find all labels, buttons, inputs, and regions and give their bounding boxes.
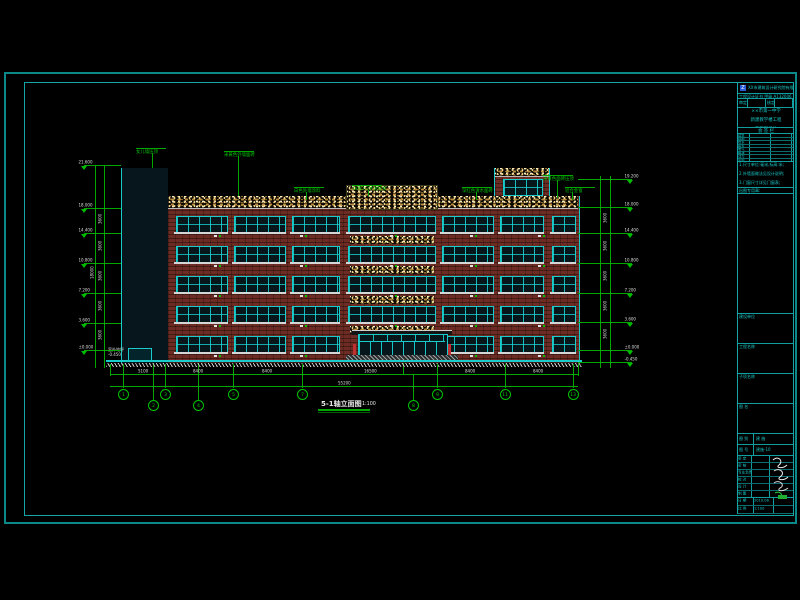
signature-role-cell: 制 图 [738,491,752,497]
annotation-leader [152,153,153,168]
level-value: -0.450 [625,358,638,361]
window-tag-mark [305,295,307,297]
signature-name-cell [752,477,770,483]
window-tag [538,325,541,327]
floor-dim-value: 3600 [98,305,102,311]
level-symbol-icon [627,264,633,268]
titleblock-approval-row: 审定核定 [738,99,793,108]
annotation-bar [462,187,492,188]
window-tag-mark [395,235,397,237]
window-sill [346,322,436,324]
window-tag-mark [395,295,397,297]
window-tag [390,265,393,267]
approval-cell [775,99,793,108]
window [348,246,436,263]
window-tag-mark [305,265,307,267]
overall-height-value: 18000 [90,273,94,279]
annotation-text: 铝合金窗 [565,189,598,192]
window-sill [290,352,340,354]
window-sill [346,292,436,294]
titleblock-footer: 日 期2010.06比 例1:100 [738,498,793,514]
window-tag-mark [475,265,477,267]
window-sill [550,292,576,294]
footer-value: 1:100 [754,507,763,511]
floor-dim-value: 3600 [603,275,607,281]
window-tag [470,265,473,267]
window-sill [346,232,436,234]
dim-chain-line [600,176,601,368]
floor-dim-value: 3600 [603,305,607,311]
window-tag-mark [395,265,397,267]
signature-role: 专业负责 [738,471,744,475]
sign-grid-cell: 暖通 [738,152,750,155]
footer-label-cell: 日 期 [738,498,754,505]
window [176,216,228,233]
grid-leader [165,374,166,388]
grid-bubble: 1 [118,389,129,400]
dim-segment-value: 16500 [364,370,376,373]
overall-dim-value: 55200 [338,382,350,385]
grid-bubble-number: 9 [436,392,439,397]
sign-grid-label: 总图 [738,159,742,162]
level-line [84,263,121,264]
window-sill [346,262,436,264]
window-sill [174,232,228,234]
sign-grid-cell [771,155,792,158]
annotation-leader [368,190,369,196]
window-tag [538,295,541,297]
titleblock-pair-rows: 图 别建 施图 号建施-10 [738,434,793,456]
footer-extra-cell [774,498,792,505]
level-value: 7.200 [625,289,638,292]
window-tag-mark [219,265,221,267]
window [442,216,494,233]
window-sill [440,232,494,234]
sign-grid-cell [750,152,771,155]
grid-leader [413,374,414,400]
dim-segment-value: 8400 [193,370,205,373]
grid-leader [437,374,438,388]
window-tag-mark [305,235,307,237]
labelled-box: 图 名 [738,404,793,434]
window-tag-mark [543,235,545,237]
window-tag [390,325,393,327]
window-sill [550,352,576,354]
window-tag-mark [395,325,397,327]
sign-grid-cell [750,145,771,148]
signature-name-cell [752,456,770,462]
approval-cell: 审定 [738,99,748,108]
level-value: ±0.000 [79,346,92,349]
cad-viewport: 室外地坪-0.45021.60018.00014.40010.8007.2003… [0,0,800,600]
window [500,306,544,323]
window-sill [232,352,286,354]
window-tag-mark [475,295,477,297]
window-sill [290,292,340,294]
level-line [84,233,121,234]
annotation-leader [476,192,477,200]
window-sill [550,232,576,234]
level-value: 10.800 [79,259,92,262]
labelled-box-title: 建设单位 [739,315,766,319]
window-tag [470,355,473,357]
sign-grid-cell [771,159,792,162]
level-line [84,350,121,351]
approval-cell: 核定 [766,99,776,108]
annotation-leader [238,156,239,196]
level-line [578,362,632,363]
window-sill [290,322,340,324]
grid-bubble: 7 [297,389,308,400]
sign-grid-cell [750,148,771,151]
level-value: 18.000 [625,203,638,206]
window [552,276,576,293]
signature-name-cell [752,484,770,490]
window [234,246,286,263]
level-symbol-icon [81,294,87,298]
pair-row: 图 别建 施 [738,434,793,445]
project-name-line: ××市第一中学 [739,108,794,113]
window [552,216,576,233]
level-value: 14.400 [79,229,92,232]
sign-grid-label: 暖通 [738,152,742,155]
window-tag [300,265,303,267]
grid-bubble-number: 8 [412,403,415,408]
approval-cell-label: 核定 [767,101,771,105]
floor-dim-value: 3600 [603,333,607,339]
labelled-box: 子项名称 [738,374,793,404]
drawing-scale: 1:100 [362,401,376,406]
window [234,216,286,233]
grid-leader [123,374,124,388]
window [500,216,544,233]
sign-grid-cell [750,134,771,137]
titleblock-sign-grid: 建筑结构给水排水电气暖通动力总图 [738,134,793,162]
labelled-box-title: 子项名称 [739,375,766,379]
level-value: 3.600 [625,318,638,321]
window-sill [290,262,340,264]
window-tag-mark [305,325,307,327]
window [348,216,436,233]
window [292,336,340,353]
window [234,276,286,293]
sign-grid-cell [750,138,771,141]
note-line: 3.门窗尺寸详见门窗表; [739,181,766,185]
footer-row: 日 期2010.06 [738,498,793,506]
window-tag [470,325,473,327]
window-sill [498,322,544,324]
spandrel-band [350,236,434,244]
window [500,276,544,293]
window [292,306,340,323]
footer-label: 日 期 [738,499,745,503]
titleblock-logo-row: Z ХХ市建筑设计研究院有限公司 [738,83,793,94]
sign-grid-cell: 结构 [738,138,750,141]
level-line [84,165,121,166]
footer-row: 比 例1:100 [738,506,793,514]
window-tag-mark [305,355,307,357]
window-tag-mark [219,355,221,357]
level-symbol-icon [81,351,87,355]
grid-leader [573,374,574,388]
note-line: 2.外墙面做法见设计说明; [739,172,766,176]
penthouse-parapet [495,168,549,177]
window-tag-mark [219,325,221,327]
level-line [84,293,121,294]
window [500,246,544,263]
footer-value: 2010.06 [754,499,763,503]
sign-grid-label: 建筑 [738,134,742,137]
grid-bubble: 2 [148,400,159,411]
level-value: 7.200 [79,289,92,292]
project-name-line: 新建教学楼工程 [739,117,794,122]
spandrel-band [350,266,434,274]
signature-role-cell: 审 核 [738,463,752,469]
grid-bubble-number: 4 [197,403,200,408]
window-sill [550,262,576,264]
window-tag [390,235,393,237]
window-tag-mark [219,235,221,237]
level-symbol-icon [627,323,633,327]
annotation-text: 米黄色面砖压顶 [543,177,576,180]
labelled-box-title: 图 名 [739,405,766,409]
annotation-text: 深红色清水面砖 [462,189,495,192]
signature-name-cell [752,463,770,469]
grid-bubble: 8 [408,400,419,411]
dim-segment-value: 8400 [533,370,545,373]
title-block: Z ХХ市建筑设计研究院有限公司 工程设计证书 甲级 A132006 建设部颁发… [737,83,793,514]
stair-tower [121,168,168,363]
ground-hatch [106,363,582,367]
window-tag-mark [543,355,545,357]
extension-line [110,364,111,376]
window [176,306,228,323]
dim-line [110,374,578,375]
window [442,246,494,263]
window-sill [232,262,286,264]
window-sill [174,322,228,324]
level-line [578,350,632,351]
stamp-label: 出图专用章: [739,189,766,193]
window [176,336,228,353]
level-value: ±0.000 [625,346,638,349]
level-symbol-icon [627,208,633,212]
floor-dim-value: 3600 [98,218,102,224]
level-symbol-icon [81,234,87,238]
window-sill [440,292,494,294]
annotation-bar [543,175,573,176]
floor-dim-value: 3600 [603,217,607,223]
pair-value: 建 施 [756,437,774,441]
window-tag [214,265,217,267]
grid-bubble-number: 1 [122,392,125,397]
grid-bubble: 9 [432,389,443,400]
annotation-leader [557,180,558,198]
footer-value-cell: 2010.06 [754,498,774,505]
level-line [578,233,632,234]
level-symbol-icon [627,351,633,355]
level-symbol-icon [81,209,87,213]
dim-segment-value: 5100 [138,370,150,373]
signature-role: 校 对 [738,478,744,482]
dim-segment-value: 8400 [262,370,274,373]
level-line [578,293,632,294]
window-sill [550,322,576,324]
window [552,246,576,263]
grid-bubble-number: 2 [152,403,155,408]
window [552,306,576,323]
level-symbol-icon [81,324,87,328]
level-symbol-icon [627,180,633,184]
level-line [84,323,121,324]
level-symbol-icon [627,294,633,298]
grid-bubble-number: 7 [301,392,304,397]
sign-grid-cell [750,155,771,158]
sign-grid-label: 结构 [738,138,742,141]
elevation-drawing: 室外地坪-0.45021.60018.00014.40010.8007.2003… [0,0,800,600]
annotation-bar [294,187,324,188]
sign-grid-cell [771,145,792,148]
sign-grid-cell: 给水 [738,141,750,144]
spandrel-band [350,296,434,304]
sign-grid-label: 排水 [738,145,742,148]
floor-dim-value: 3600 [603,245,607,251]
titleblock-stamp-area [738,194,793,314]
signature-role: 设 计 [738,485,744,489]
window-tag-mark [543,325,545,327]
footer-extra-cell [774,506,792,513]
grid-bubble: 13 [568,389,579,400]
sign-grid-label: 动力 [738,155,742,158]
window-tag-mark [543,295,545,297]
window-tag [470,235,473,237]
footer-label-cell: 比 例 [738,506,754,513]
approval-cell [748,99,766,108]
penthouse [494,168,550,196]
pair-label: 图 号 [739,448,746,452]
company-name: ХХ市建筑设计研究院有限公司 [748,86,793,90]
grid-leader [198,374,199,400]
dim-chain-line [610,176,611,368]
window-tag [300,325,303,327]
window-sill [440,322,494,324]
window-sill [174,352,228,354]
annotation-bar [565,187,595,188]
footer-label: 比 例 [738,507,745,511]
pair-value-cell: 建 施 [754,434,792,444]
window-sill [498,232,544,234]
titleblock-notes: 1.尺寸单位:毫米,标高:米;2.外墙面做法见设计说明;3.门窗尺寸详见门窗表;… [738,162,793,188]
window-tag [538,355,541,357]
grid-leader [505,374,506,388]
sign-grid-cell [750,159,771,162]
level-symbol-icon [627,234,633,238]
window [234,336,286,353]
note-line: 1.尺寸单位:毫米,标高:米; [739,163,766,167]
window [292,246,340,263]
sign-grid-cell: 电气 [738,148,750,151]
window-tag [214,235,217,237]
grid-bubble: 5 [228,389,239,400]
window [500,336,544,353]
level-value: 21.600 [79,161,92,164]
signature-scribbles [770,455,793,499]
window [176,246,228,263]
window [442,306,494,323]
signature-name-cell [752,491,770,497]
title-underline-thin [318,412,370,413]
grid-leader [302,374,303,388]
signature-role-cell: 设 计 [738,484,752,490]
annotation-leader [306,192,307,200]
signature-role: 制 图 [738,492,744,496]
window-tag-mark [475,235,477,237]
pair-label: 图 别 [739,437,746,441]
window-tag-mark [219,295,221,297]
entrance-transom [359,335,445,342]
window-tag-mark [543,265,545,267]
window [348,306,436,323]
pair-label-cell: 图 别 [738,434,754,444]
dim-line-overall [110,386,578,387]
signature-role-cell: 校 对 [738,477,752,483]
level-value: 14.400 [625,229,638,232]
window-tag [470,295,473,297]
annotation-bar [224,151,254,152]
window-tag [214,295,217,297]
grid-bubble-number: 11 [503,392,509,397]
window-tag [300,355,303,357]
level-value: 3.600 [79,319,92,322]
level-line [578,263,632,264]
pair-value: 建施-10 [756,448,774,452]
window-sill [232,292,286,294]
signature-name-cell [752,470,770,476]
annotation-bar [136,148,166,149]
grid-bubble-number: 5 [232,392,235,397]
grid-leader [153,374,154,400]
window-sill [498,262,544,264]
window [234,306,286,323]
grid-bubble-number: 13 [571,392,577,397]
sign-grid-cell: 动力 [738,155,750,158]
window-sill [232,322,286,324]
labelled-box: 建设单位 [738,314,793,344]
dim-chain-line [104,166,105,368]
sign-grid-cell [750,141,771,144]
annotation-text: 米黄色外墙面砖 [224,153,257,156]
level-line [578,207,632,208]
window-sill [174,262,228,264]
window-tag-mark [475,325,477,327]
window-tag [538,265,541,267]
window-sill [498,292,544,294]
company-logo-icon: Z [740,85,746,91]
floor-dim-value: 3600 [98,245,102,251]
ground-line [106,360,582,362]
title-underline [318,409,370,411]
titleblock-project-name: ××市第一中学新建教学楼工程施工图设计 [738,108,793,128]
signature-role: 审 定 [738,457,744,461]
window-sill [232,232,286,234]
dim-chain-line [95,166,96,368]
approval-cell-label: 审定 [739,101,743,105]
window [348,276,436,293]
sign-grid-cell: 总图 [738,159,750,162]
footer-value-cell: 1:100 [754,506,774,513]
sign-grid-cell [771,152,792,155]
window-tag [538,235,541,237]
